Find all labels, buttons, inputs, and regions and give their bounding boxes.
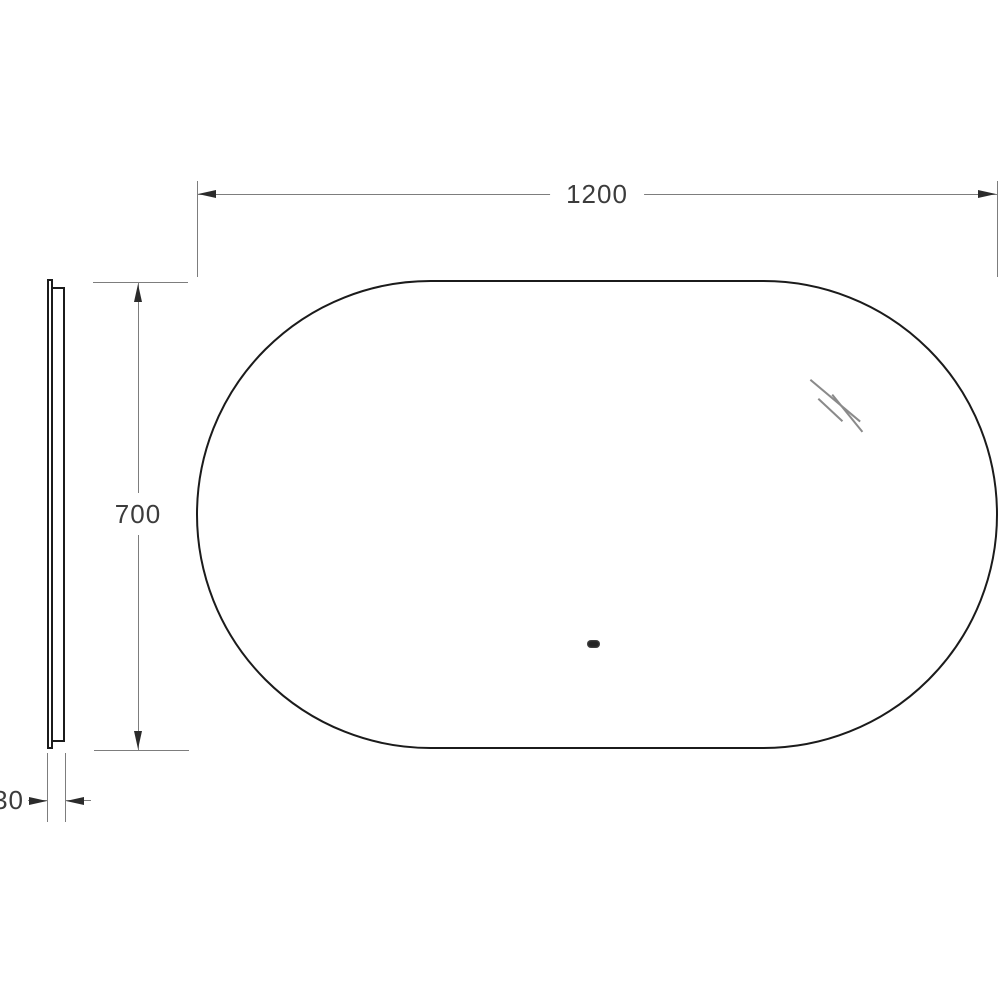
width-dimension-label: 1200: [550, 179, 644, 209]
technical-drawing-canvas: 1200 700 30: [0, 0, 1000, 1000]
height-arrowhead-bottom: [134, 731, 142, 749]
width-extension-line-right: [997, 181, 998, 277]
touch-sensor-dot: [587, 640, 600, 648]
height-arrowhead-top: [134, 284, 142, 302]
height-extension-line-bottom: [94, 750, 189, 751]
depth-extension-line-left: [47, 753, 48, 822]
mirror-side-profile-body: [51, 287, 65, 742]
depth-dimension-label: 30: [0, 785, 28, 815]
height-dimension-label: 700: [109, 493, 167, 535]
depth-arrowhead-right: [66, 797, 84, 805]
mirror-front-view: [196, 280, 998, 749]
width-arrowhead-left: [198, 190, 216, 198]
width-arrowhead-right: [978, 190, 996, 198]
depth-arrowhead-left: [29, 797, 47, 805]
depth-extension-line-right: [65, 753, 66, 822]
mirror-side-profile-glass: [47, 279, 53, 749]
